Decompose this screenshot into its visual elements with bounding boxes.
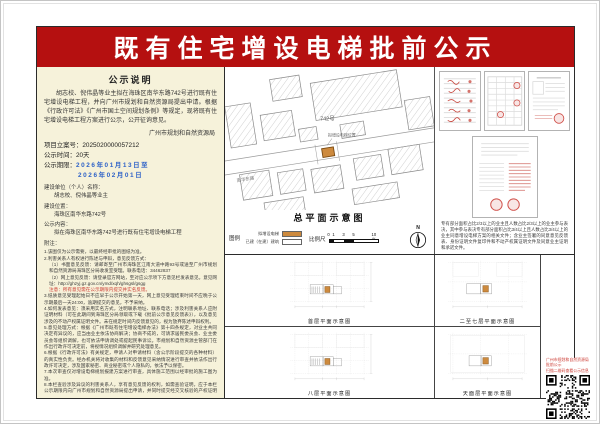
- elevator-marker: [325, 287, 330, 293]
- owner-signature-sheet: [439, 71, 481, 131]
- applicant-value: 胡志校、倪伟晶等业主: [54, 191, 217, 199]
- owner-commitment-letter: [472, 136, 538, 218]
- floor-plans-col-1: 首层平面示意图 八层平面示意图: [225, 255, 435, 398]
- legend-label: 图例: [229, 234, 240, 242]
- notice-page: 既有住宅增设电梯批前公示 公示说明 胡志校、倪伟晶等业主拟在海珠区南华东路742…: [0, 0, 600, 424]
- document-thumbnails: [439, 71, 570, 131]
- scale-tick: 3: [342, 232, 344, 237]
- floor-plan-cell: 首层平面示意图: [225, 255, 434, 327]
- note-item: 7.本次审查仅对增设电梯规划报建方案进行审查，具体施工范围以经审批的施工图为准。: [44, 369, 217, 382]
- north-arrow-icon: N: [409, 226, 427, 249]
- duration-value: 20天: [76, 152, 90, 159]
- qr-caption-line1: 广州市规划和自然资源局批前公示: [546, 358, 592, 368]
- legend-items: 拟增设电梯 已建（在建）建筑: [245, 231, 302, 245]
- period-label: 公示期限：: [44, 162, 76, 169]
- floor-plan-drawing: [227, 257, 432, 316]
- site-plan-pane: 742号 拟增设电梯位置 南华东路 总平面示意图 图例 拟增设电梯: [225, 67, 435, 254]
- elevator-site-marker: [322, 147, 335, 158]
- commitment-letter-image: [473, 137, 537, 217]
- panel-heading: 公示说明: [44, 73, 217, 86]
- authority-signature: 广州市规划和自然资源局: [44, 128, 215, 137]
- scale-tick: 1: [332, 232, 334, 237]
- legend-item-existing: 已建（在建）建筑: [245, 239, 302, 245]
- location-label: 建设位置：: [44, 202, 217, 210]
- signature-sheet-image: [440, 72, 480, 130]
- period-row: 公示期限：2026年01月13日至2026年02月01日: [44, 161, 217, 181]
- content-label: 公示内容：: [44, 220, 217, 228]
- seal-stamp-icon: [490, 199, 501, 210]
- drawings-region: 742号 拟增设电梯位置 南华东路 总平面示意图 图例 拟增设电梯: [225, 67, 574, 398]
- project-number-label: 项目立案号：: [44, 142, 82, 149]
- qr-code: [546, 375, 590, 419]
- note-item: 8.本栏查验涉及异议的利害关系人，享有意见反馈的权利，如需查验证明，应于本栏公示…: [44, 382, 217, 394]
- scale-tick: 5: [352, 232, 354, 237]
- elevator-marker: [325, 359, 330, 365]
- top-row: 742号 拟增设电梯位置 南华东路 总平面示意图 图例 拟增设电梯: [225, 67, 574, 255]
- note-item: 4.如何发表意见：须采用实名方式，注明联系地址、联系电话；涉及利害关系人应附证明…: [44, 306, 217, 325]
- floor-plan-caption: 二至七层平面示意图: [435, 318, 540, 325]
- scale-bar: 比例尺 0 1 3 5 10米: [309, 232, 381, 244]
- qr-code-block: 广州市规划和自然资源局批前公示 扫描二维码查看公示信息: [546, 358, 592, 419]
- elevator-swatch: [282, 231, 302, 237]
- qr-caption-line2: 扫描二维码查看公示信息: [546, 369, 592, 374]
- map-label-building-no: 742号: [320, 116, 335, 123]
- floor-plan-caption: 八层平面示意图: [225, 390, 434, 397]
- floor-plans-row: 首层平面示意图 八层平面示意图: [225, 255, 574, 398]
- site-plan-drawing: 742号 拟增设电梯位置 南华东路: [225, 67, 434, 210]
- map-label-marker: 拟增设电梯位置: [328, 133, 356, 138]
- application-form: [528, 71, 570, 131]
- duration-label: 公示时间：: [44, 152, 76, 159]
- notice-frame: 既有住宅增设电梯批前公示 公示说明 胡志校、倪伟晶等业主拟在海珠区南华东路742…: [36, 26, 575, 399]
- note-item: （1）书面意见反馈：请邮寄至广州市海珠区江南大道中路93号或送至广州市规划和自然…: [49, 262, 217, 275]
- period-end: 2026年02月01日: [78, 171, 217, 181]
- project-number-value: 2025020000057212: [82, 142, 139, 149]
- location-value: 海珠区南华东路742号: [54, 210, 217, 218]
- notes-list: 1.该图仅为公示需要，以最终经审批的图纸为准。 2.利害关系人有权进行陈述与申辩…: [44, 249, 217, 394]
- seal-stamp-icon: [555, 114, 565, 124]
- elevator-marker: [483, 358, 489, 364]
- vote-table-image: [485, 72, 525, 130]
- note-item: 6.根据《行政许可法》有关规定，申请人对申请材料（含公示阶段提交的各种材料）的真…: [44, 350, 217, 369]
- legend-row: 图例 拟增设电梯 已建（在建）建筑: [225, 226, 434, 254]
- note-item: 5.意见处理方式：根据《广州市既有住宅增设电梯办法》第十四条规定，对业主共同决定…: [44, 325, 217, 350]
- scale-label: 比例尺: [309, 235, 326, 243]
- floor-plan-cell: 天面层平面示意图: [435, 327, 540, 398]
- page-title: 既有住宅增设电梯批前公示: [113, 29, 497, 65]
- application-form-image: [529, 72, 569, 130]
- floor-plan-drawing: [227, 329, 432, 388]
- site-plan-caption: 总平面示意图: [225, 211, 434, 224]
- existing-building-swatch: [282, 239, 302, 245]
- project-number-row: 项目立案号：2025020000057212: [44, 141, 217, 151]
- content-area: 公示说明 胡志校、倪伟晶等业主拟在海珠区南华东路742号进行既有住宅增设电梯工程…: [37, 67, 574, 398]
- seal-stamp-icon: [507, 199, 518, 210]
- elevator-marker: [483, 286, 489, 292]
- applicant-label: 建设单位（个人）名称：: [44, 183, 217, 191]
- floor-plan-cell: 八层平面示意图: [225, 327, 434, 398]
- documents-note: 专有部分面积占比2/3以上的业主且人数占比2/3以上的业主参与表决，其中参与表决…: [439, 221, 570, 251]
- floor-plan-drawing: [437, 257, 538, 316]
- floor-plan-caption: 首层平面示意图: [225, 318, 434, 325]
- floor-plan-cell: 二至七层平面示意图: [435, 255, 540, 327]
- duration-row: 公示时间：20天: [44, 151, 217, 161]
- content-value: 拟在海珠区南华东路742号进行既有住宅增设电梯工程: [54, 228, 217, 236]
- title-banner: 既有住宅增设电梯批前公示: [37, 27, 574, 67]
- notes-label: 附注：: [44, 239, 217, 247]
- owner-vote-table: [484, 71, 526, 131]
- documents-pane: 专有部分面积占比2/3以上的业主且人数占比2/3以上的业主参与表决，其中参与表决…: [435, 67, 574, 254]
- scale-tick: 0: [327, 232, 329, 237]
- period-start: 2026年01月13日至: [76, 162, 149, 169]
- floor-plan-drawing: [437, 329, 538, 388]
- floor-plans-col-2: 二至七层平面示意图 天面层平面示意图: [435, 255, 541, 398]
- intro-paragraph: 胡志校、倪伟晶等业主拟在海珠区南华东路742号进行既有住宅增设电梯工程，并向广州…: [44, 90, 217, 126]
- legend-item-elevator: 拟增设电梯: [245, 231, 302, 237]
- floor-plan-caption: 天面层平面示意图: [435, 390, 540, 397]
- note-item-with-url: （2）网上意见反馈：请登录官方网站，至对应公示项下方意见栏发表意见。意见网址：h…: [49, 275, 217, 288]
- note-item: 3.纸质意见受理起始日不应早于公示开始第一天，网上意见受理结束时间不应晚于公示期…: [44, 293, 217, 306]
- notice-description-panel: 公示说明 胡志校、倪伟晶等业主拟在海珠区南华东路742号进行既有住宅增设电梯工程…: [37, 67, 225, 398]
